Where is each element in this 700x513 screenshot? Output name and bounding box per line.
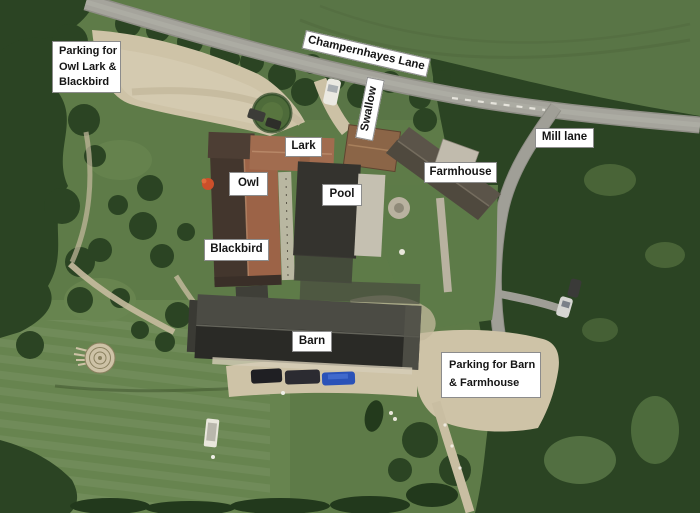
- label-pool: Pool: [322, 184, 362, 206]
- label-parking-barn-farmhouse: Parking for Barn & Farmhouse: [441, 352, 541, 398]
- label-line: & Farmhouse: [449, 375, 540, 393]
- blue-car: [322, 371, 355, 385]
- label-mill-lane: Mill lane: [535, 128, 594, 148]
- car-barn-1: [251, 368, 283, 384]
- aerial-photo: Parking for Owl Lark & Blackbird Champer…: [0, 0, 700, 513]
- label-farmhouse: Farmhouse: [424, 162, 497, 183]
- label-parking-owl-lark-blackbird: Parking for Owl Lark & Blackbird: [52, 41, 121, 93]
- label-lark: Lark: [285, 137, 322, 157]
- label-line: Owl Lark &: [59, 60, 120, 76]
- label-barn: Barn: [292, 331, 332, 352]
- car-barn-2: [285, 369, 320, 384]
- label-line: Blackbird: [59, 75, 120, 91]
- label-line: Parking for: [59, 44, 120, 60]
- label-owl: Owl: [229, 172, 268, 196]
- label-line: Parking for Barn: [449, 357, 540, 375]
- label-blackbird: Blackbird: [204, 239, 269, 261]
